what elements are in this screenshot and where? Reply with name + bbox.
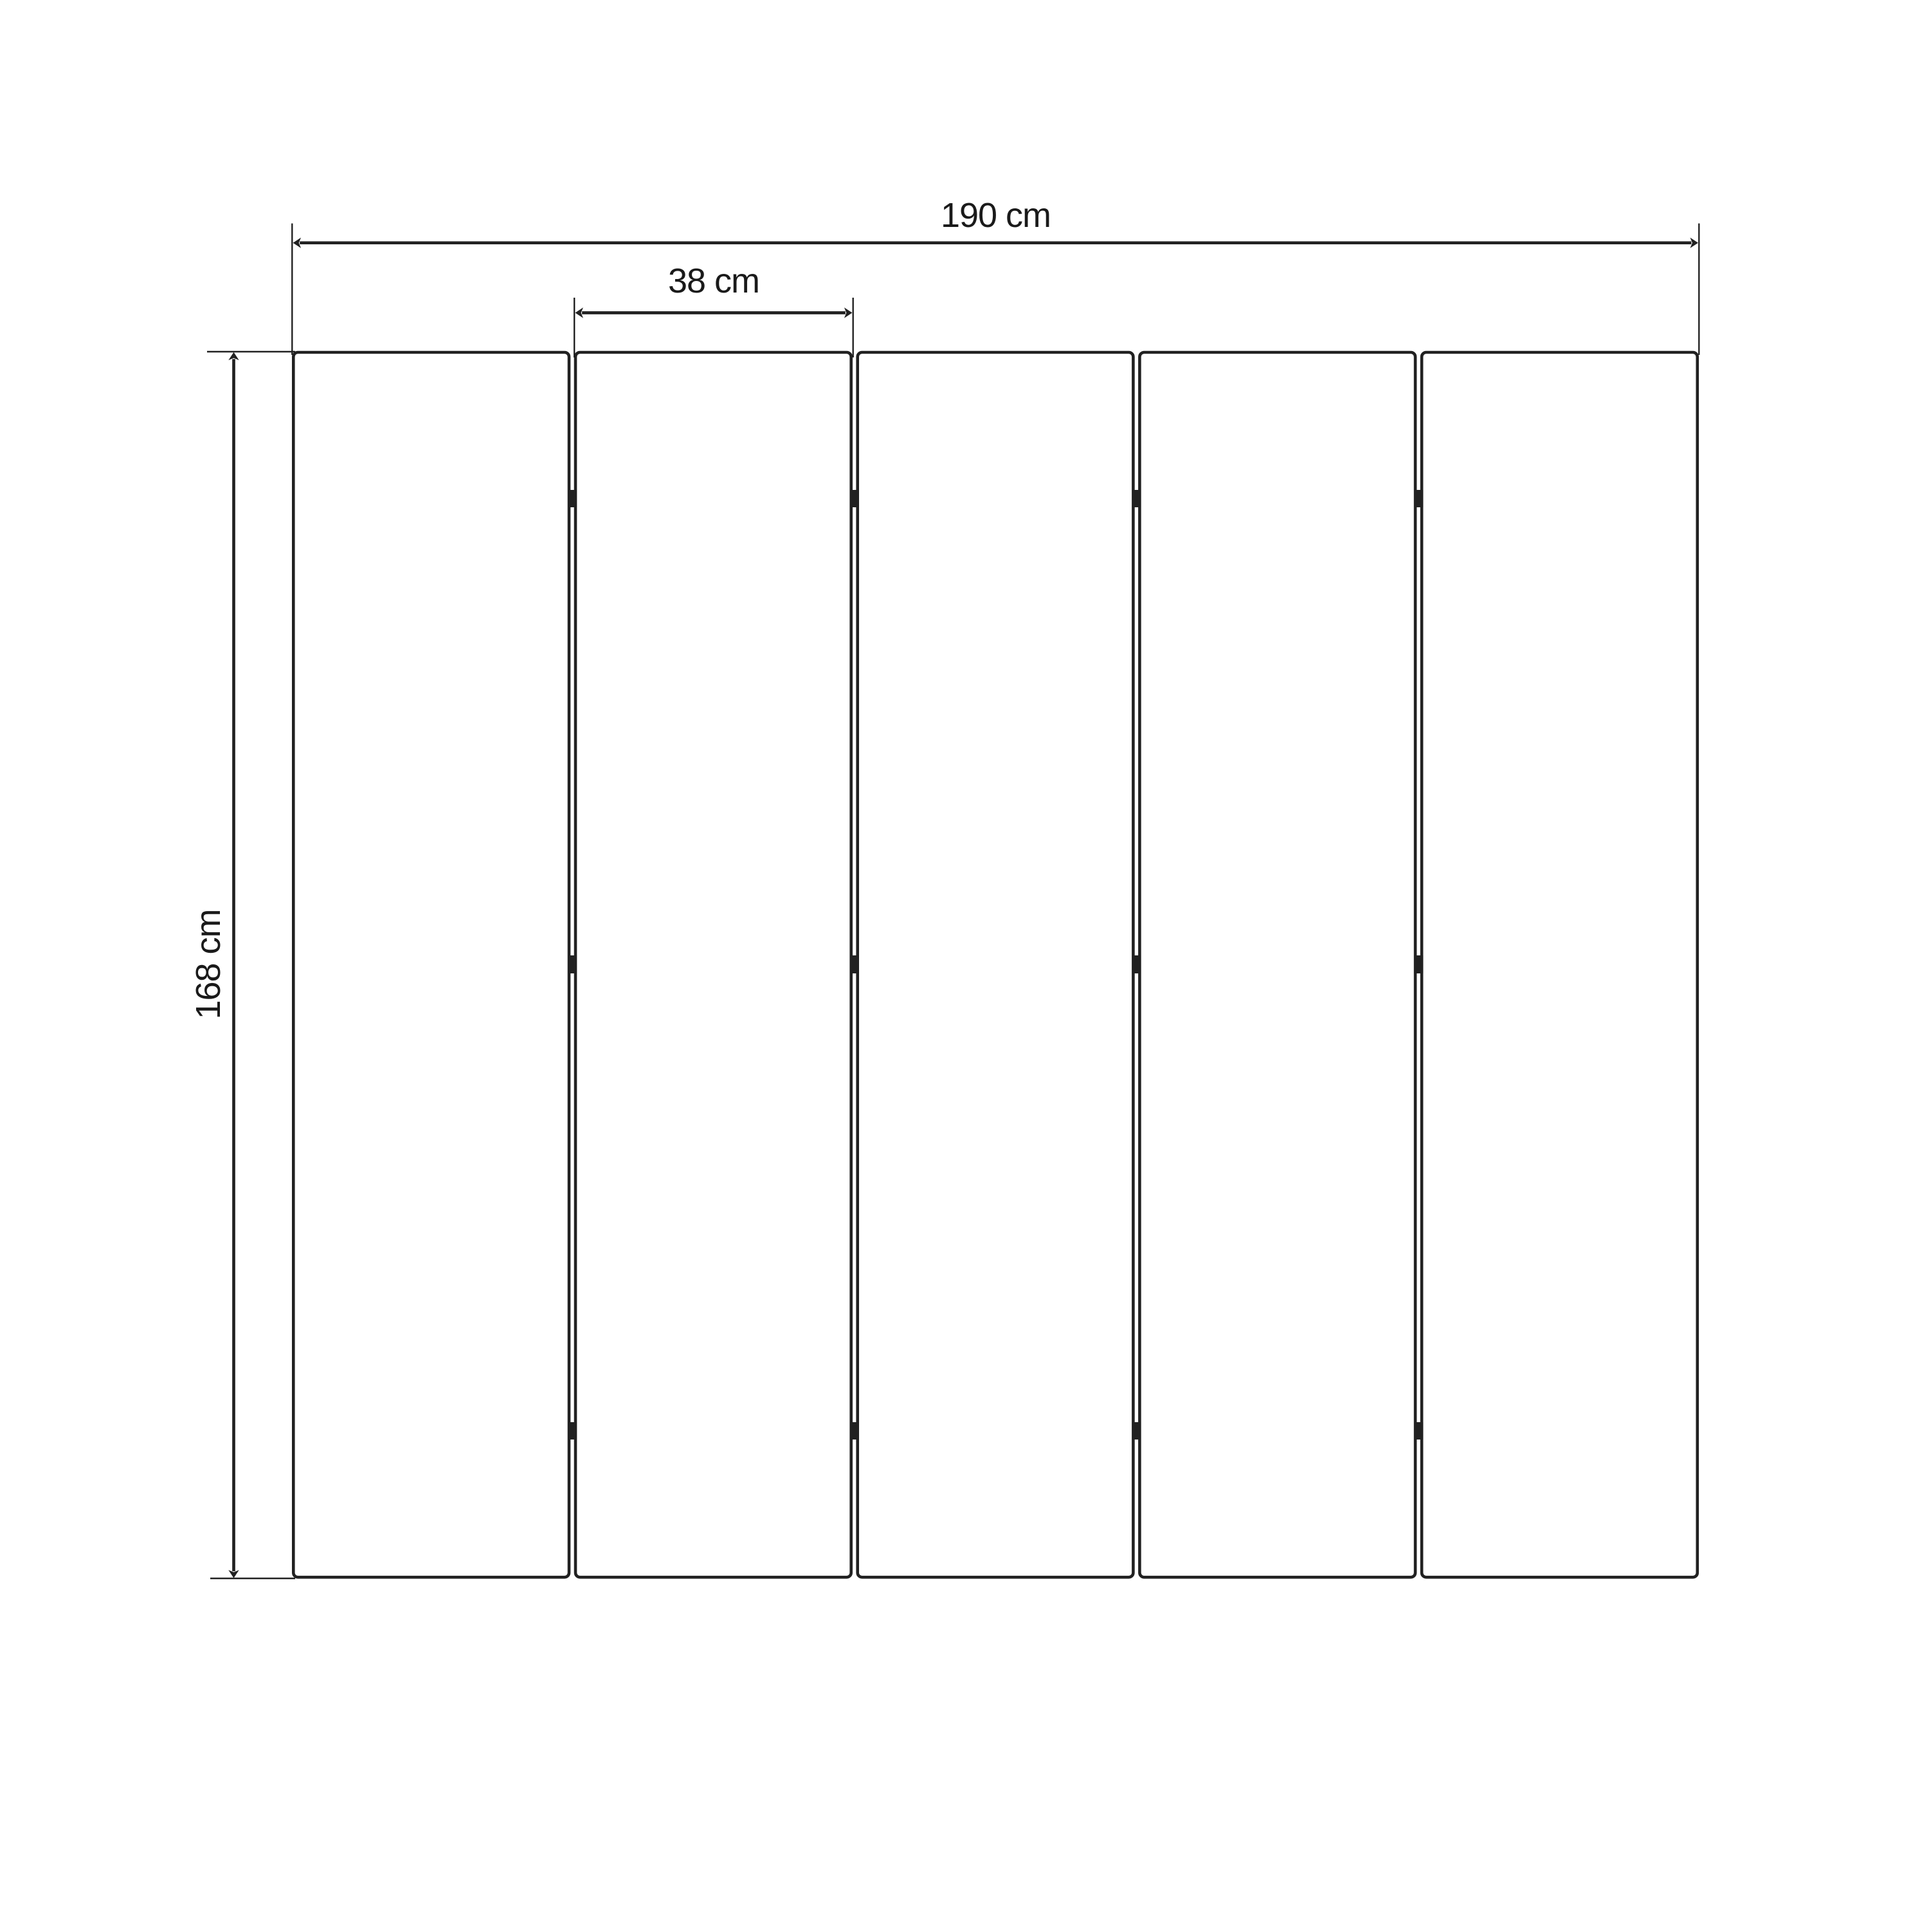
- svg-text:168 cm: 168 cm: [189, 909, 228, 1019]
- svg-text:190 cm: 190 cm: [941, 196, 1051, 235]
- svg-text:38 cm: 38 cm: [668, 262, 759, 300]
